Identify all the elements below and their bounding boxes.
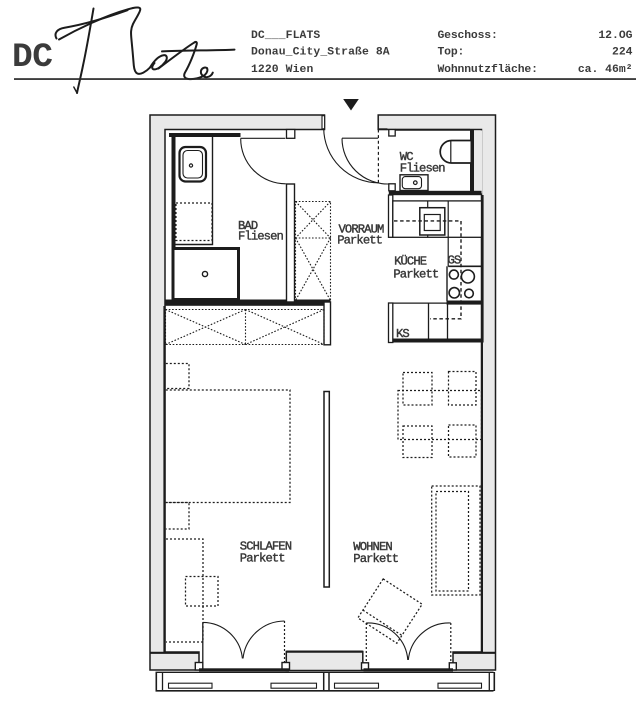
svg-text:Parkett: Parkett [240, 552, 285, 566]
svg-text:Top:: Top: [438, 46, 465, 58]
svg-text:Geschoss:: Geschoss: [438, 30, 498, 42]
svg-text:KS: KS [396, 327, 409, 341]
svg-text:Fliesen: Fliesen [238, 230, 283, 244]
svg-text:1220 Wien: 1220 Wien [251, 64, 313, 76]
svg-text:DC___FLATS: DC___FLATS [251, 30, 320, 42]
svg-text:ca. 46m²: ca. 46m² [578, 64, 633, 76]
svg-text:Parkett: Parkett [337, 234, 382, 248]
svg-text:Parkett: Parkett [393, 268, 438, 282]
svg-text:Parkett: Parkett [353, 552, 398, 566]
svg-text:12.OG: 12.OG [598, 30, 632, 42]
svg-text:Fliesen: Fliesen [400, 162, 445, 176]
svg-text:224: 224 [612, 46, 633, 58]
svg-text:Wohnnutzfläche:: Wohnnutzfläche: [438, 64, 538, 76]
svg-text:DC: DC [12, 38, 52, 77]
svg-text:Donau_City_Straße 8A: Donau_City_Straße 8A [251, 46, 390, 58]
svg-text:GS: GS [448, 253, 461, 267]
